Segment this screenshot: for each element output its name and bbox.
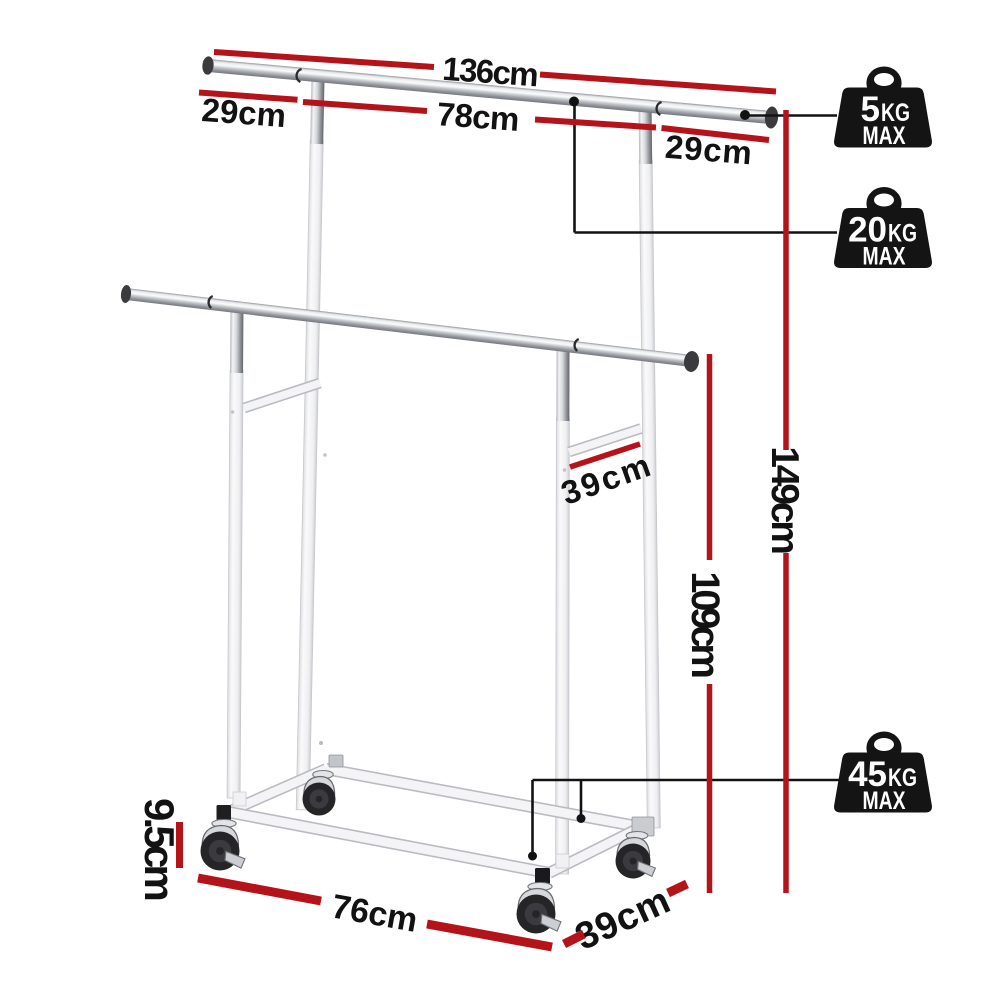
svg-text:29cm: 29cm xyxy=(200,91,287,134)
svg-text:29cm: 29cm xyxy=(664,128,754,172)
svg-text:9.5cm: 9.5cm xyxy=(136,798,183,900)
svg-text:MAX: MAX xyxy=(863,122,906,150)
svg-text:136cm: 136cm xyxy=(441,50,538,94)
svg-text:149cm: 149cm xyxy=(763,446,806,553)
svg-text:78cm: 78cm xyxy=(436,95,521,138)
svg-text:39cm: 39cm xyxy=(569,879,677,958)
svg-text:76cm: 76cm xyxy=(329,887,420,939)
svg-text:MAX: MAX xyxy=(863,243,906,271)
svg-text:109cm: 109cm xyxy=(683,571,727,677)
svg-text:MAX: MAX xyxy=(863,787,906,815)
